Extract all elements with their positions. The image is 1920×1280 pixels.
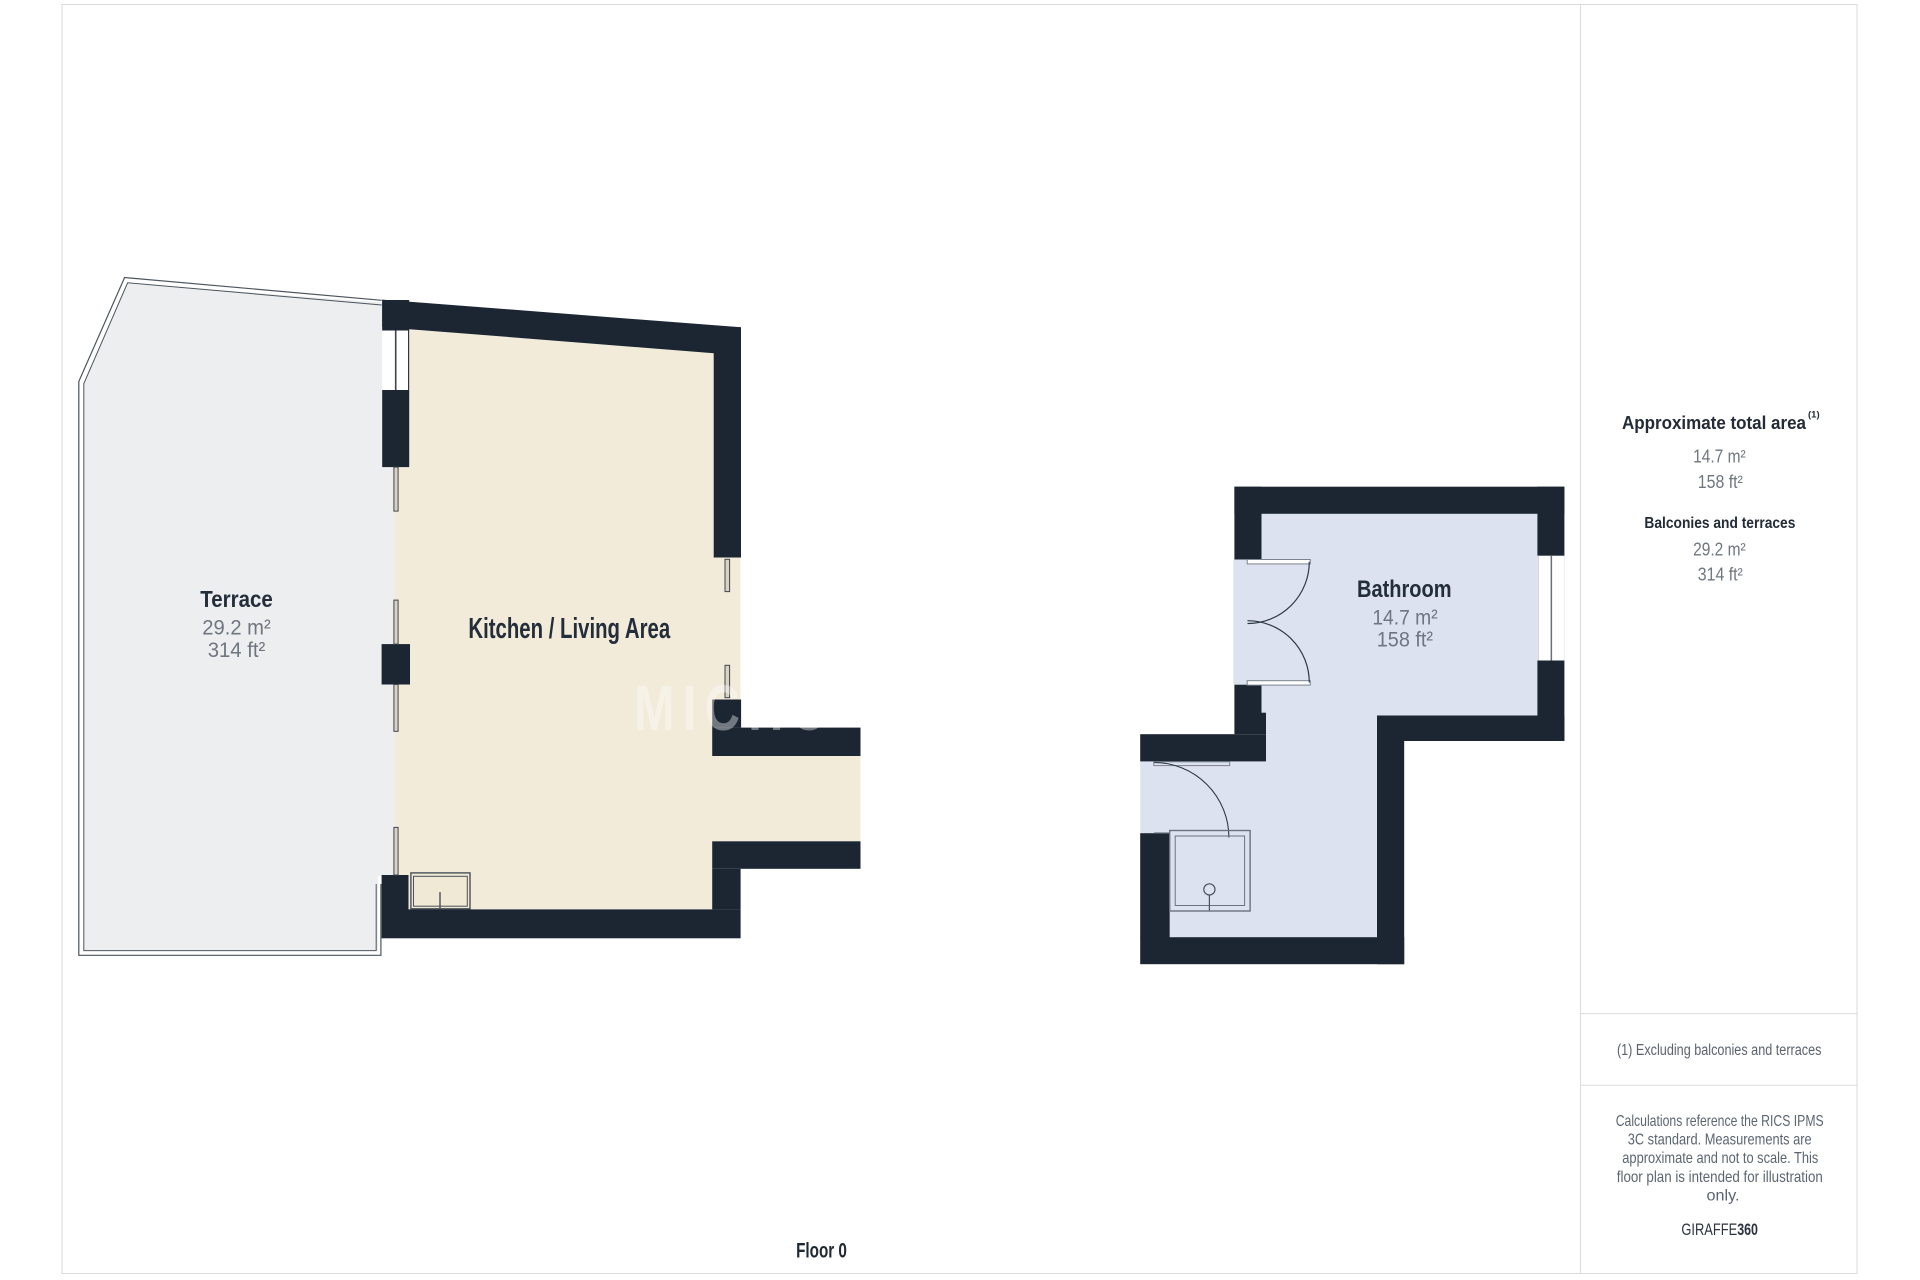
svg-text:158 ft²: 158 ft²: [1698, 472, 1743, 492]
svg-text:Approximate total area: Approximate total area: [1622, 412, 1807, 433]
svg-text:Balconies and terraces: Balconies and terraces: [1644, 515, 1795, 532]
svg-text:360: 360: [1737, 1220, 1758, 1239]
svg-text:GIRAFFE: GIRAFFE: [1681, 1220, 1737, 1239]
svg-text:Bathroom: Bathroom: [1357, 576, 1452, 603]
svg-text:approximate and not to scale.: approximate and not to scale. This: [1622, 1150, 1818, 1167]
svg-text:29.2 m²: 29.2 m²: [202, 617, 271, 640]
svg-text:floor plan is intended for ill: floor plan is intended for illustration: [1617, 1169, 1823, 1186]
svg-text:314 ft²: 314 ft²: [1698, 565, 1743, 585]
svg-text:(1): (1): [1808, 410, 1820, 421]
svg-text:Calculations reference the RIC: Calculations reference the RICS IPMS: [1616, 1113, 1824, 1130]
svg-text:14.7 m²: 14.7 m²: [1372, 607, 1437, 630]
svg-text:3C standard. Measurements are: 3C standard. Measurements are: [1628, 1132, 1812, 1149]
svg-text:Floor 0: Floor 0: [796, 1239, 847, 1263]
svg-text:(1) Excluding balconies and te: (1) Excluding balconies and terraces: [1617, 1042, 1822, 1059]
svg-text:14.7 m²: 14.7 m²: [1693, 447, 1746, 467]
svg-text:Kitchen / Living Area: Kitchen / Living Area: [468, 613, 671, 645]
svg-text:29.2 m²: 29.2 m²: [1693, 539, 1746, 559]
svg-text:only.: only.: [1707, 1187, 1740, 1204]
svg-text:MICHU: MICHU: [634, 674, 835, 745]
svg-text:Terrace: Terrace: [200, 586, 273, 612]
svg-text:158 ft²: 158 ft²: [1377, 629, 1433, 652]
svg-text:314 ft²: 314 ft²: [208, 639, 266, 662]
